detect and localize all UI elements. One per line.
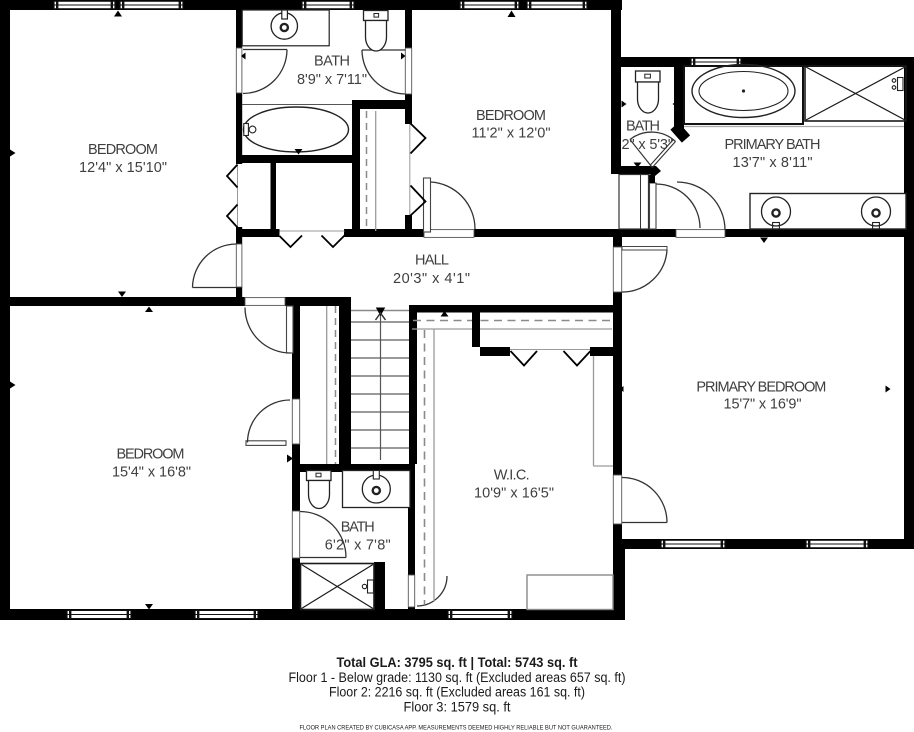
- svg-text:BEDROOM: BEDROOM: [117, 447, 185, 463]
- svg-text:BEDROOM: BEDROOM: [476, 108, 546, 124]
- svg-text:11'2" x 12'0": 11'2" x 12'0": [472, 126, 551, 142]
- svg-text:W.I.C.: W.I.C.: [494, 468, 530, 484]
- svg-text:15'4" x 16'8": 15'4" x 16'8": [112, 465, 191, 481]
- svg-text:6'2" x 7'8": 6'2" x 7'8": [325, 538, 391, 554]
- svg-text:PRIMARY BEDROOM: PRIMARY BEDROOM: [696, 380, 826, 396]
- svg-text:Floor 2: 2216 sq. ft (Excluded: Floor 2: 2216 sq. ft (Excluded areas 161…: [329, 685, 585, 700]
- svg-text:Total GLA: 3795 sq. ft | Total: Total GLA: 3795 sq. ft | Total: 5743 sq.…: [337, 655, 578, 670]
- svg-text:15'7" x 16'9": 15'7" x 16'9": [724, 397, 802, 413]
- svg-text:HALL: HALL: [415, 253, 449, 269]
- svg-text:BATH: BATH: [314, 54, 350, 70]
- svg-text:8'9" x 7'11": 8'9" x 7'11": [297, 72, 367, 88]
- svg-text:12'4" x 15'10": 12'4" x 15'10": [79, 160, 167, 176]
- svg-text:BATH: BATH: [341, 520, 375, 536]
- svg-text:10'9" x 16'5": 10'9" x 16'5": [474, 486, 554, 502]
- svg-text:PRIMARY BATH: PRIMARY BATH: [725, 137, 821, 153]
- svg-text:20'3" x 4'1": 20'3" x 4'1": [393, 271, 470, 287]
- svg-text:13'7" x 8'11": 13'7" x 8'11": [733, 155, 813, 171]
- svg-text:BEDROOM: BEDROOM: [88, 142, 158, 158]
- svg-text:Floor 1 - Below grade: 1130 sq: Floor 1 - Below grade: 1130 sq. ft (Excl…: [289, 670, 626, 685]
- svg-text:FLOOR PLAN CREATED BY CUBICASA: FLOOR PLAN CREATED BY CUBICASA APP. MEAS…: [300, 725, 613, 732]
- svg-text:Floor 3: 1579 sq. ft: Floor 3: 1579 sq. ft: [404, 700, 511, 715]
